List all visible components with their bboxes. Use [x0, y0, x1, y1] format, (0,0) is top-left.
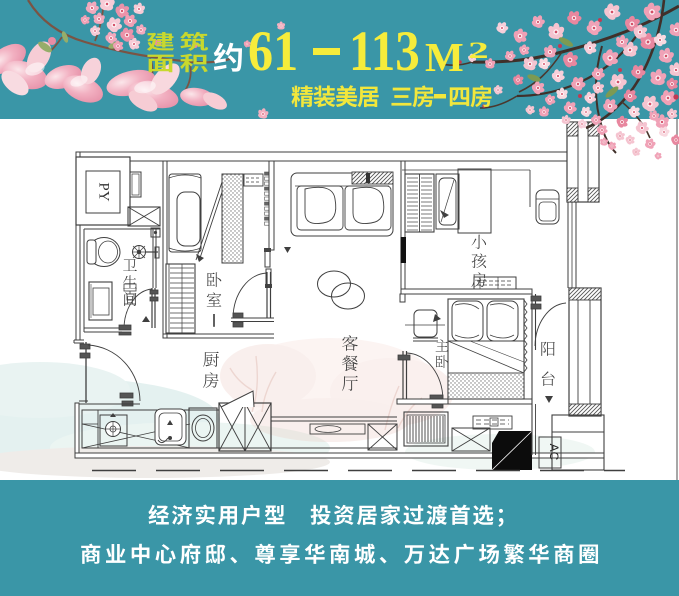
svg-text:AC: AC	[547, 444, 561, 461]
svg-text:M: M	[425, 34, 464, 80]
svg-text:61: 61	[248, 19, 298, 83]
svg-text:PY: PY	[96, 182, 112, 201]
svg-text:2: 2	[468, 38, 489, 63]
svg-text:113: 113	[349, 21, 420, 83]
